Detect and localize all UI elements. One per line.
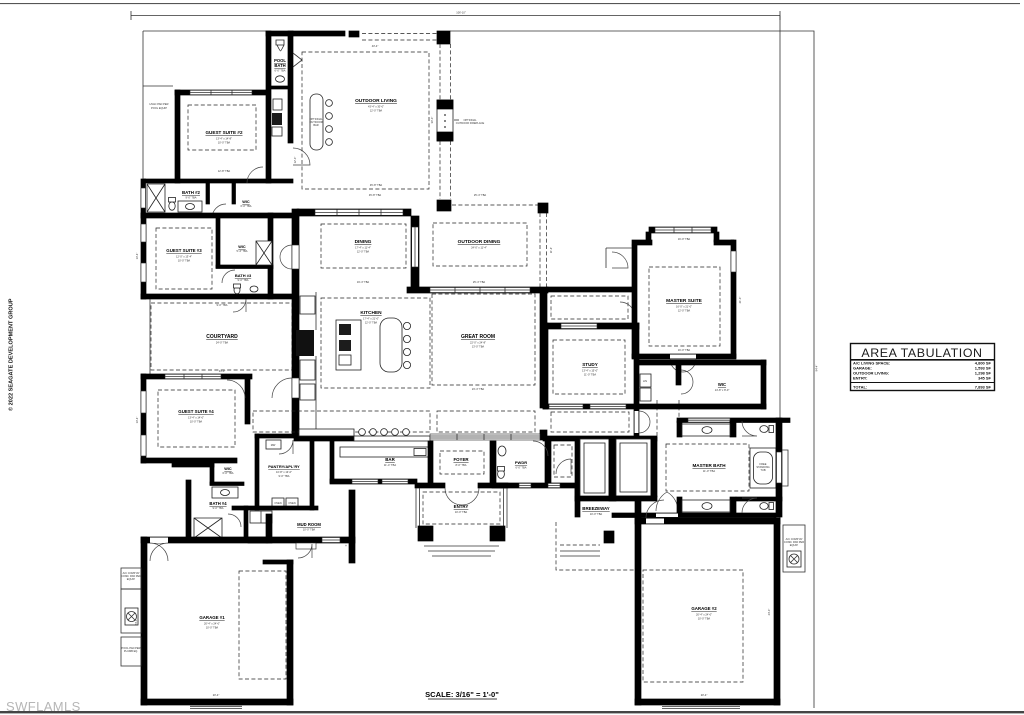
svg-text:GUEST SUITE #4: GUEST SUITE #4 xyxy=(178,409,214,414)
svg-text:24'-0": 24'-0" xyxy=(767,609,771,616)
svg-text:13'-4" x 14'-0": 13'-4" x 14'-0" xyxy=(188,416,204,420)
svg-text:10'-0" TBA: 10'-0" TBA xyxy=(455,510,468,514)
svg-text:12'-8" TBA: 12'-8" TBA xyxy=(218,169,231,173)
svg-text:GUEST SUITE #2: GUEST SUITE #2 xyxy=(205,130,242,135)
svg-text:OVEN: OVEN xyxy=(288,501,295,505)
svg-text:10'-0" TBA: 10'-0" TBA xyxy=(190,420,203,424)
svg-text:94'-4": 94'-4" xyxy=(815,365,819,372)
svg-text:345 SF: 345 SF xyxy=(978,376,991,381)
svg-text:GARAGE #2: GARAGE #2 xyxy=(691,606,717,611)
svg-text:12'-0" TBA: 12'-0" TBA xyxy=(678,309,691,313)
svg-text:FOYER: FOYER xyxy=(453,457,469,462)
svg-text:WIC: WIC xyxy=(242,200,250,204)
svg-text:GREAT ROOM: GREAT ROOM xyxy=(461,334,495,340)
svg-text:6'-0" TBA: 6'-0" TBA xyxy=(223,471,234,475)
svg-text:WIC: WIC xyxy=(718,382,726,387)
svg-text:OUTDOOR FIREPLACE: OUTDOOR FIREPLACE xyxy=(456,121,485,125)
svg-text:6'-0" TBA: 6'-0" TBA xyxy=(516,466,527,470)
svg-text:MUD ROOM: MUD ROOM xyxy=(297,522,321,527)
svg-text:22'-0" x 24'-8": 22'-0" x 24'-8" xyxy=(470,341,486,345)
svg-text:16'-0" TBA: 16'-0" TBA xyxy=(678,348,691,352)
svg-text:LIN: LIN xyxy=(643,379,647,383)
svg-text:13'-4" x 15'-0": 13'-4" x 15'-0" xyxy=(582,369,598,373)
svg-text:10'-8" x 13'-0": 10'-8" x 13'-0" xyxy=(276,470,292,474)
svg-text:WIC: WIC xyxy=(224,467,232,471)
svg-text:PWDR: PWDR xyxy=(515,460,527,465)
svg-text:106'-10": 106'-10" xyxy=(456,11,466,15)
svg-text:21'-0": 21'-0" xyxy=(738,297,742,304)
svg-text:GARAGE #1: GARAGE #1 xyxy=(199,615,225,620)
svg-text:MW: MW xyxy=(271,443,276,447)
svg-text:BATH #2: BATH #2 xyxy=(182,190,201,195)
svg-text:GUEST SUITE #3: GUEST SUITE #3 xyxy=(166,248,202,253)
svg-text:8'-0" TBA: 8'-0" TBA xyxy=(456,463,467,467)
svg-text:EQUIP.: EQUIP. xyxy=(790,543,799,547)
svg-text:14'-8" x 8'-0": 14'-8" x 8'-0" xyxy=(715,388,730,392)
svg-text:9'-0" TBA: 9'-0" TBA xyxy=(217,303,228,307)
svg-text:BREEZEWAY: BREEZEWAY xyxy=(582,506,609,511)
svg-text:7,893 SF: 7,893 SF xyxy=(975,385,992,390)
svg-text:SWFLAMLS: SWFLAMLS xyxy=(6,699,81,714)
svg-text:25'-4" TBA: 25'-4" TBA xyxy=(473,280,486,284)
svg-text:9'-0" TBA: 9'-0" TBA xyxy=(238,278,249,282)
svg-text:24'-0": 24'-0" xyxy=(134,619,138,626)
svg-text:20'-4" x 24'-0": 20'-4" x 24'-0" xyxy=(696,613,712,617)
svg-text:WIC: WIC xyxy=(238,245,246,249)
svg-text:BATH #3: BATH #3 xyxy=(235,273,252,278)
svg-text:BAR: BAR xyxy=(385,457,395,462)
svg-text:10'-0" TBA: 10'-0" TBA xyxy=(698,617,711,621)
svg-text:TUB: TUB xyxy=(760,468,765,472)
svg-text:9'-0" TBA: 9'-0" TBA xyxy=(213,506,224,510)
svg-text:TOTAL:: TOTAL: xyxy=(853,385,867,390)
svg-text:13'-4": 13'-4" xyxy=(135,417,139,424)
svg-text:OVEN: OVEN xyxy=(274,501,281,505)
svg-text:16'-0" x 21'-0": 16'-0" x 21'-0" xyxy=(676,305,692,309)
svg-text:20'-4": 20'-4" xyxy=(701,693,708,697)
svg-text:5'-4" TBA: 5'-4" TBA xyxy=(237,249,248,253)
svg-text:DINING: DINING xyxy=(355,239,372,245)
svg-text:POOL EQUIP: POOL EQUIP xyxy=(151,106,167,110)
svg-text:+: + xyxy=(345,544,347,548)
svg-text:43'-4": 43'-4" xyxy=(372,44,379,48)
svg-text:20'-4": 20'-4" xyxy=(213,693,220,697)
svg-text:10'-0" TBA: 10'-0" TBA xyxy=(178,259,191,263)
svg-text:PLUMB EQ.: PLUMB EQ. xyxy=(124,649,138,653)
svg-text:OUTDOOR DINING: OUTDOOR DINING xyxy=(458,239,501,245)
svg-text:12'-0" TBA: 12'-0" TBA xyxy=(365,321,378,325)
svg-text:11'-0" TBA: 11'-0" TBA xyxy=(703,469,715,473)
svg-text:6'-0" TBA: 6'-0" TBA xyxy=(241,204,252,208)
svg-text:17'-4" x 21'-0": 17'-4" x 21'-0" xyxy=(363,317,379,321)
svg-text:MASTER BATH: MASTER BATH xyxy=(692,463,726,468)
svg-text:16'-0" TBA: 16'-0" TBA xyxy=(678,237,691,241)
svg-text:KITCHEN: KITCHEN xyxy=(360,310,382,316)
svg-text:BAR: BAR xyxy=(313,123,318,127)
svg-text:12'-0" TBA: 12'-0" TBA xyxy=(370,109,383,113)
svg-text:STUDY: STUDY xyxy=(582,362,598,367)
svg-text:12'-0" TBA: 12'-0" TBA xyxy=(357,250,370,254)
svg-text:6'-0" TBA: 6'-0" TBA xyxy=(275,69,286,73)
svg-text:11'-4" TBA: 11'-4" TBA xyxy=(384,463,396,467)
svg-text:24'-0" x 11'-4": 24'-0" x 11'-4" xyxy=(471,246,487,250)
svg-text:HVAC PAD PER: HVAC PAD PER xyxy=(150,102,169,106)
svg-text:13'-0" TBA: 13'-0" TBA xyxy=(472,345,485,349)
svg-text:11'-4": 11'-4" xyxy=(549,247,553,253)
svg-text:43'-4" x 30'-0": 43'-4" x 30'-0" xyxy=(368,105,384,109)
svg-text:24'-0" TBA: 24'-0" TBA xyxy=(216,341,229,345)
svg-text:9'-0" TBA: 9'-0" TBA xyxy=(186,196,197,200)
svg-text:BATH #4: BATH #4 xyxy=(209,501,227,506)
svg-text:9'-0" TBA: 9'-0" TBA xyxy=(279,474,290,478)
svg-text:17'-4" x 11'-4": 17'-4" x 11'-4" xyxy=(355,246,371,250)
svg-text:ENTRY: ENTRY xyxy=(454,504,469,509)
svg-text:ENTRY:: ENTRY: xyxy=(853,376,867,381)
svg-text:13'-4" x 14'-8": 13'-4" x 14'-8" xyxy=(216,137,232,141)
svg-text:45'-8" TBA: 45'-8" TBA xyxy=(370,183,383,187)
svg-text:24'-0": 24'-0" xyxy=(219,369,226,373)
svg-text:19'-4" TBA: 19'-4" TBA xyxy=(357,280,370,284)
svg-text:EQUIP.: EQUIP. xyxy=(127,577,136,581)
svg-text:BATH: BATH xyxy=(274,63,285,68)
svg-text:COURTYARD: COURTYARD xyxy=(206,334,238,340)
svg-text:12'-0" x 13'-4": 12'-0" x 13'-4" xyxy=(176,255,192,259)
svg-text:PANTRY/APL'RY: PANTRY/APL'RY xyxy=(268,464,300,469)
svg-text:MASTER SUITE: MASTER SUITE xyxy=(666,298,703,304)
svg-text:10'-0" TBA: 10'-0" TBA xyxy=(206,626,219,630)
svg-text:10'-0" TBA: 10'-0" TBA xyxy=(218,141,231,145)
svg-text:13'-4": 13'-4" xyxy=(135,253,139,260)
svg-text:11'-0" TBA: 11'-0" TBA xyxy=(584,373,596,377)
svg-text:10'-0" TBA: 10'-0" TBA xyxy=(590,512,603,516)
svg-text:25'-4" TBA: 25'-4" TBA xyxy=(474,193,487,197)
svg-text:30'-0": 30'-0" xyxy=(430,117,434,124)
svg-text:10'-0" TBA: 10'-0" TBA xyxy=(303,528,316,532)
svg-text:12'-0": 12'-0" xyxy=(293,157,297,164)
svg-text:AREA TABULATION: AREA TABULATION xyxy=(861,346,982,360)
svg-text:23'-4" TBA: 23'-4" TBA xyxy=(472,387,485,391)
svg-text:45'-8" TBA: 45'-8" TBA xyxy=(369,193,382,197)
svg-text:SCALE: 3/16" = 1'-0": SCALE: 3/16" = 1'-0" xyxy=(425,690,499,699)
svg-text:© 2022 SEAGATE DEVELOPMENT GRO: © 2022 SEAGATE DEVELOPMENT GROUP xyxy=(8,298,15,411)
svg-text:OUTDOOR LIVING: OUTDOOR LIVING xyxy=(355,98,397,104)
svg-text:20'-4" x 24'-0": 20'-4" x 24'-0" xyxy=(204,622,220,626)
